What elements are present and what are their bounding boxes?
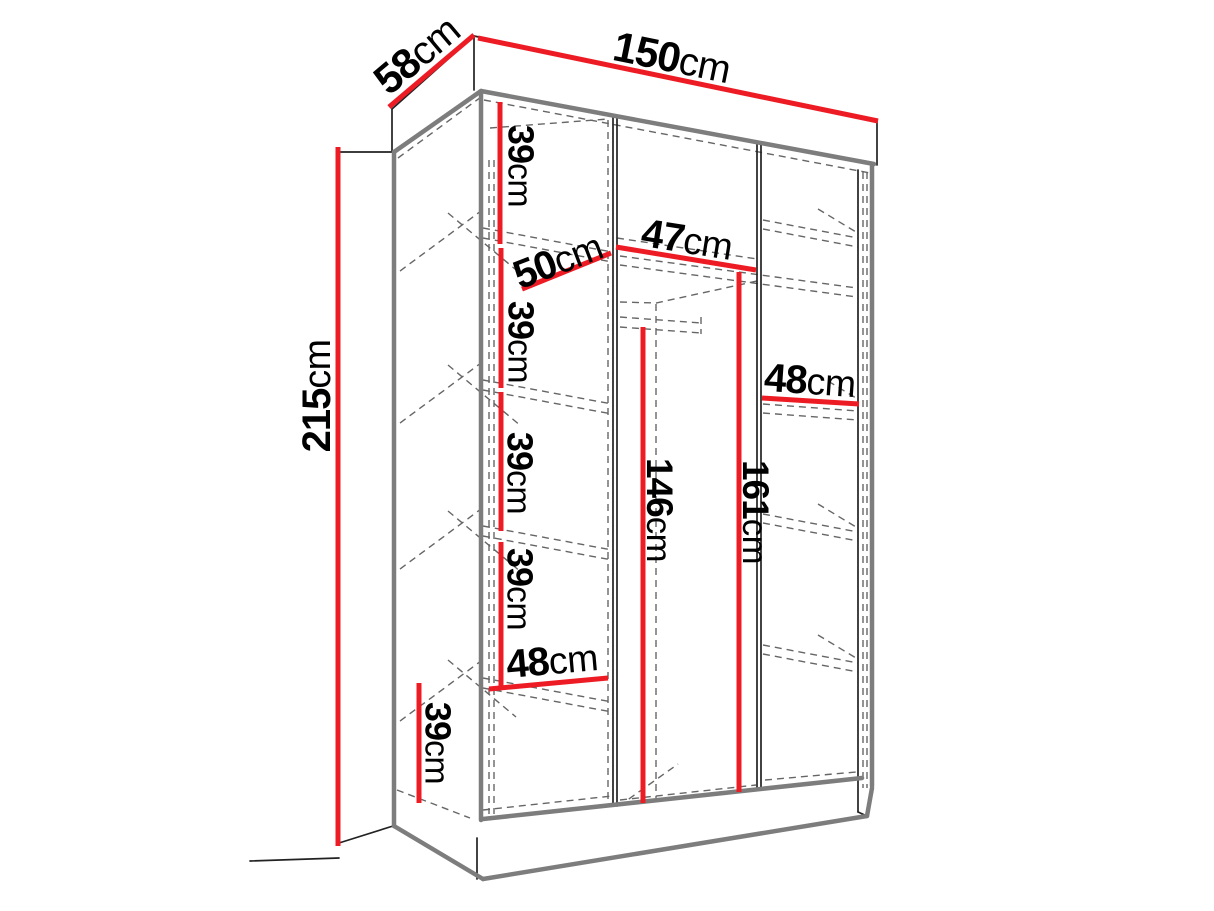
dim-unit: cm (296, 340, 338, 389)
dim-label-39cm-3: 39cm (501, 432, 538, 514)
dim-unit: cm (735, 519, 773, 564)
carcass-strong-edges (394, 91, 874, 879)
dim-value: 215 (295, 389, 339, 453)
dim-value: 146 (639, 458, 680, 517)
wardrobe-line-drawing (0, 0, 1214, 911)
dim-value: 48 (763, 356, 808, 403)
dim-value: 39 (500, 301, 541, 339)
dim-unit: cm (639, 517, 677, 562)
dim-label-48cm-bottom: 48cm (505, 637, 600, 685)
dim-label-48cm-right: 48cm (763, 358, 857, 404)
dim-label-146cm: 146cm (640, 458, 678, 562)
dim-value: 39 (499, 432, 540, 470)
dim-label-39cm-bottom: 39cm (419, 702, 456, 784)
dim-value: 48 (504, 639, 550, 687)
dim-value: 39 (499, 548, 540, 586)
dim-unit: cm (417, 740, 455, 784)
dim-label-215cm: 215cm (297, 340, 337, 453)
dim-unit: cm (499, 470, 537, 514)
dim-unit: cm (499, 586, 537, 630)
dim-label-39cm-1: 39cm (502, 125, 539, 207)
dim-label-39cm-4: 39cm (501, 548, 538, 630)
dim-unit: cm (500, 163, 538, 207)
dim-label-161cm: 161cm (736, 460, 774, 564)
dim-value: 47 (638, 211, 687, 261)
hidden-edges (397, 97, 870, 818)
dim-unit: cm (680, 219, 735, 268)
wardrobe-dimension-diagram: 58cm 150cm 215cm 39cm 39cm 39cm 39cm 50c… (0, 0, 1214, 911)
dim-value: 39 (417, 702, 458, 740)
dim-value: 39 (500, 125, 541, 163)
dim-value: 161 (735, 460, 776, 519)
visible-thin-edges (250, 36, 877, 879)
dim-unit: cm (500, 339, 538, 383)
dim-unit: cm (805, 360, 857, 405)
dim-label-39cm-2: 39cm (502, 301, 539, 383)
dim-unit: cm (547, 636, 600, 682)
